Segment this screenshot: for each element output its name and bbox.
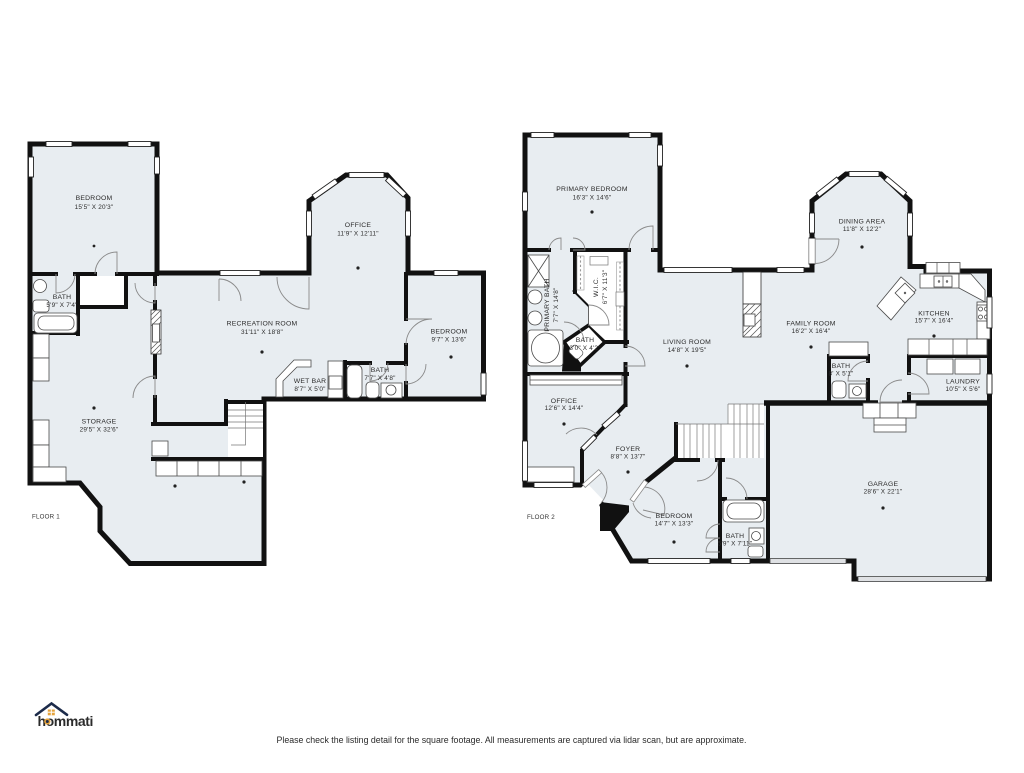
svg-text:14'8" X 19'5": 14'8" X 19'5" — [668, 347, 707, 354]
svg-text:Please check the listing detai: Please check the listing detail for the … — [277, 735, 747, 745]
svg-text:BEDROOM: BEDROOM — [76, 195, 113, 202]
svg-text:RECREATION ROOM: RECREATION ROOM — [227, 321, 298, 328]
svg-text:BATH: BATH — [576, 337, 595, 344]
svg-text:BATH: BATH — [371, 367, 390, 374]
svg-text:29'5" X 32'6": 29'5" X 32'6" — [80, 427, 119, 434]
svg-text:8'8" X 13'7": 8'8" X 13'7" — [611, 454, 646, 461]
svg-text:PRIMARY BEDROOM: PRIMARY BEDROOM — [556, 186, 628, 193]
svg-text:8'7" X 5'0": 8'7" X 5'0" — [294, 386, 325, 393]
svg-text:6'7" X 11'3": 6'7" X 11'3" — [602, 270, 609, 305]
svg-text:11'9" X 12'11": 11'9" X 12'11" — [337, 231, 379, 238]
svg-text:3'0" X 4'2": 3'0" X 4'2" — [569, 345, 600, 352]
svg-text:BATH: BATH — [726, 533, 745, 540]
svg-text:LIVING ROOM: LIVING ROOM — [663, 339, 711, 346]
svg-text:28'6" X 22'1": 28'6" X 22'1" — [864, 489, 903, 496]
svg-text:OFFICE: OFFICE — [551, 398, 578, 405]
svg-text:BEDROOM: BEDROOM — [656, 513, 693, 520]
svg-text:10'5" X 5'6": 10'5" X 5'6" — [946, 386, 981, 393]
svg-text:BATH: BATH — [832, 363, 851, 370]
svg-text:9'7" X 13'6": 9'7" X 13'6" — [432, 337, 467, 344]
svg-text:OFFICE: OFFICE — [345, 222, 372, 229]
svg-text:16'3" X 14'6": 16'3" X 14'6" — [573, 195, 612, 202]
svg-text:14'7" X 13'3": 14'7" X 13'3" — [655, 521, 694, 528]
svg-text:LAUNDRY: LAUNDRY — [946, 379, 980, 386]
svg-text:11'8" X 12'2": 11'8" X 12'2" — [843, 226, 881, 233]
svg-text:FAMILY ROOM: FAMILY ROOM — [786, 321, 835, 328]
svg-text:FLOOR 2: FLOOR 2 — [527, 514, 555, 521]
svg-text:W.I.C.: W.I.C. — [593, 277, 600, 297]
svg-text:GARAGE: GARAGE — [868, 481, 899, 488]
svg-text:FOYER: FOYER — [616, 446, 641, 453]
svg-text:12'6" X 14'4": 12'6" X 14'4" — [545, 405, 584, 412]
svg-text:5'9" X 7'11": 5'9" X 7'11" — [718, 541, 753, 548]
svg-text:BATH: BATH — [53, 294, 72, 301]
svg-text:8' X 5'1": 8' X 5'1" — [829, 371, 854, 378]
svg-text:31'11" X 18'8": 31'11" X 18'8" — [241, 329, 283, 336]
svg-text:16'2" X 16'4": 16'2" X 16'4" — [792, 328, 831, 335]
svg-text:WET BAR: WET BAR — [294, 378, 327, 385]
svg-text:15'5" X 20'3": 15'5" X 20'3" — [75, 204, 114, 211]
svg-text:KITCHEN: KITCHEN — [918, 311, 950, 318]
svg-text:FLOOR 1: FLOOR 1 — [32, 514, 60, 521]
svg-text:BEDROOM: BEDROOM — [431, 329, 468, 336]
svg-text:STORAGE: STORAGE — [82, 419, 117, 426]
svg-text:PRIMARY BATH: PRIMARY BATH — [544, 278, 551, 331]
svg-text:DINING AREA: DINING AREA — [839, 219, 886, 226]
svg-text:15'7" X 16'4": 15'7" X 16'4" — [915, 318, 954, 325]
svg-text:7'7" X 4'8": 7'7" X 4'8" — [364, 375, 395, 382]
svg-text:7'7" X 14'8": 7'7" X 14'8" — [553, 288, 560, 323]
svg-text:5'9" X 7'4": 5'9" X 7'4" — [46, 302, 77, 309]
